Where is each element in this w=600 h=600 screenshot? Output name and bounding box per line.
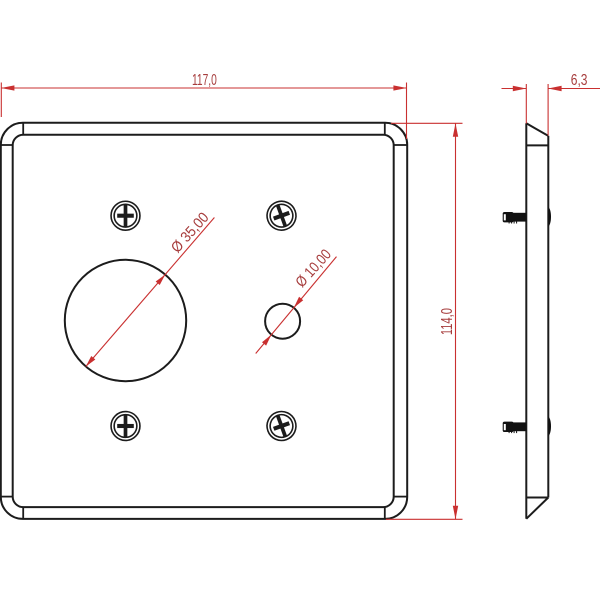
svg-text:117,0: 117,0 bbox=[192, 71, 217, 89]
svg-text:114,0: 114,0 bbox=[437, 308, 456, 335]
svg-text:6,3: 6,3 bbox=[571, 70, 588, 88]
